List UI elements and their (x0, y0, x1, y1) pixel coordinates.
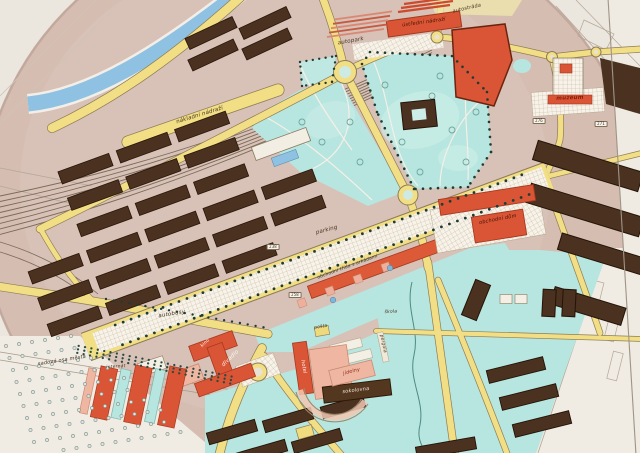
tree-dot (110, 428, 113, 431)
tree-dot (229, 382, 231, 384)
tree-dot (320, 270, 323, 273)
tree-dot (41, 376, 44, 379)
tree-dot (76, 352, 78, 354)
tree-dot (154, 309, 157, 312)
tree-dot (44, 388, 47, 391)
tree-dot (265, 268, 268, 271)
tree-dot (417, 212, 420, 215)
tree-dot (421, 53, 424, 56)
tree-dot (512, 199, 515, 202)
tree-dot (472, 214, 475, 217)
tree-dot (192, 371, 194, 373)
tree-dot (387, 134, 390, 137)
tree-dot (24, 366, 27, 369)
tree-dot (129, 340, 132, 343)
tree-dot (318, 83, 320, 85)
tree-dot (32, 440, 35, 443)
tree-dot (145, 335, 148, 338)
tree-dot (142, 398, 145, 401)
tree-dot (140, 436, 143, 439)
tree-dot (17, 342, 20, 345)
tree-dot (482, 87, 485, 90)
tree-dot (103, 350, 105, 352)
tree-dot (247, 323, 249, 325)
tree-dot (400, 240, 403, 243)
tree-dot (15, 380, 18, 383)
tree-dot (50, 362, 53, 365)
tree-dot (121, 357, 123, 359)
tree-dot (490, 151, 493, 154)
tree-dot (223, 381, 225, 383)
tree-dot (51, 412, 54, 415)
tree-dot (108, 358, 110, 360)
tree-dot (114, 440, 117, 443)
tree-dot (393, 221, 396, 224)
tree-dot (84, 346, 86, 348)
tree-dot (477, 170, 480, 173)
tree-dot (191, 313, 193, 315)
tree-dot (129, 355, 131, 357)
tree-dot (95, 356, 97, 358)
tree-dot (457, 197, 460, 200)
tree-dot (128, 358, 130, 360)
tree-dot (90, 347, 92, 349)
tree-dot (211, 375, 213, 377)
tree-dot (83, 350, 85, 352)
tree-dot (97, 430, 100, 433)
tree-dot (376, 51, 379, 54)
tree-dot (192, 368, 194, 370)
tree-dot (121, 361, 123, 363)
tree-dot (329, 244, 332, 247)
tree-dot (184, 312, 186, 314)
tree-dot (331, 81, 333, 83)
tree-dot (176, 311, 178, 313)
tree-dot (87, 394, 90, 397)
tree-dot (172, 371, 174, 373)
tree-dot (360, 255, 363, 258)
tree-dot (312, 273, 315, 276)
tree-dot (345, 238, 348, 241)
tree-dot (384, 51, 387, 54)
tree-dot (209, 311, 212, 314)
tree-dot (122, 354, 124, 356)
tree-dot (217, 308, 220, 311)
tree-dot (198, 372, 200, 374)
tree-dot (58, 436, 61, 439)
tree-dot (481, 188, 484, 191)
tree-dot (160, 361, 162, 363)
tree-dot (153, 332, 156, 335)
tree-dot (305, 253, 308, 256)
tree-dot (162, 420, 165, 423)
tree-dot (321, 247, 324, 250)
tree-dot (217, 376, 219, 378)
tree-dot (224, 374, 226, 376)
tree-dot (109, 351, 111, 353)
tree-dot (144, 305, 146, 307)
tree-dot (130, 318, 133, 321)
tree-dot (465, 194, 468, 197)
tree-dot (486, 91, 489, 94)
tree-dot (77, 408, 80, 411)
tree-dot (134, 360, 136, 362)
tree-dot (211, 371, 213, 373)
tree-dot (179, 365, 181, 367)
tree-dot (440, 226, 443, 229)
tree-dot (197, 376, 199, 378)
tree-dot (273, 287, 276, 290)
tree-dot (129, 400, 132, 403)
tree-dot (68, 422, 71, 425)
tree-dot (489, 143, 492, 146)
tree-dot (331, 56, 333, 58)
tree-dot (29, 428, 32, 431)
tree-dot (436, 54, 439, 57)
tree-dot (337, 241, 340, 244)
tree-dot (178, 300, 181, 303)
tree-dot (122, 376, 125, 379)
tree-dot (416, 234, 419, 237)
tree-dot (225, 305, 228, 308)
tree-dot (391, 52, 394, 55)
tree-dot (25, 416, 28, 419)
tree-dot (210, 379, 212, 381)
tree-dot (43, 338, 46, 341)
tree-dot (114, 359, 116, 361)
tree-dot (161, 329, 164, 332)
tree-dot (138, 315, 141, 318)
tree-dot (466, 71, 469, 74)
tree-dot (216, 380, 218, 382)
tree-dot (249, 296, 252, 299)
tree-dot (289, 259, 292, 262)
tree-dot (444, 54, 447, 57)
tree-dot (96, 380, 99, 383)
tree-dot (67, 372, 70, 375)
tree-dot (367, 82, 370, 85)
tree-dot (352, 258, 355, 261)
tree-dot (8, 356, 11, 359)
tree-dot (413, 188, 416, 191)
tree-dot (488, 128, 491, 131)
tree-dot (148, 359, 150, 361)
tree-dot (425, 209, 428, 212)
tree-dot (127, 362, 129, 364)
tree-dot (193, 317, 196, 320)
tree-dot (177, 323, 180, 326)
tree-dot (90, 351, 92, 353)
tree-dot (403, 167, 406, 170)
tree-dot (451, 55, 454, 58)
tree-dot (473, 176, 476, 179)
tree-dot (61, 398, 64, 401)
tree-dot (299, 61, 301, 63)
tree-dot (45, 438, 48, 441)
tree-dot (371, 96, 374, 99)
tree-dot (28, 378, 31, 381)
tree-dot (469, 182, 472, 185)
tree-dot (81, 420, 84, 423)
tree-dot (93, 368, 96, 371)
tree-dot (21, 354, 24, 357)
tree-dot (94, 418, 97, 421)
tree-dot (239, 322, 241, 324)
tree-dot (140, 365, 142, 367)
tree-dot (186, 297, 189, 300)
tree-dot (233, 280, 236, 283)
tree-dot (361, 232, 364, 235)
tree-dot (149, 422, 152, 425)
tree-dot (166, 432, 169, 435)
tree-dot (160, 308, 162, 310)
tree-dot (100, 392, 103, 395)
tree-dot (482, 163, 485, 166)
tree-dot (89, 356, 92, 359)
tree-dot (452, 186, 455, 189)
tree-dot (74, 396, 77, 399)
tree-dot (305, 276, 308, 279)
tree-dot (76, 358, 79, 361)
tree-dot (136, 304, 138, 306)
tree-dot (141, 361, 143, 363)
tree-dot (75, 446, 78, 449)
tree-dot (365, 57, 368, 60)
tree-dot (31, 390, 34, 393)
tree-dot (185, 370, 187, 372)
tree-dot (106, 366, 109, 369)
tree-dot (166, 366, 168, 368)
tree-dot (199, 315, 201, 317)
tree-dot (390, 140, 393, 143)
tree-dot (429, 187, 432, 190)
tree-dot (400, 161, 403, 164)
tree-dot (146, 312, 149, 315)
tree-dot (437, 187, 440, 190)
tree-dot (369, 51, 372, 54)
tree-dot (399, 52, 402, 55)
tree-dot (11, 368, 14, 371)
tree-dot (205, 370, 207, 372)
tree-dot (449, 200, 452, 203)
tree-dot (146, 366, 148, 368)
tree-dot (70, 384, 73, 387)
tree-dot (374, 104, 377, 107)
tree-dot (71, 434, 74, 437)
tree-dot (231, 320, 233, 322)
tree-dot (179, 430, 182, 433)
tree-dot (114, 324, 117, 327)
tree-dot (504, 202, 507, 205)
tree-dot (459, 186, 462, 189)
tree-dot (369, 89, 372, 92)
tree-dot (496, 205, 499, 208)
tree-dot (414, 53, 417, 56)
tree-dot (64, 410, 67, 413)
tree-dot (312, 59, 314, 61)
tree-dot (225, 282, 228, 285)
tree-dot (380, 120, 383, 123)
tree-dot (63, 360, 66, 363)
tree-dot (160, 365, 162, 367)
tree-dot (115, 356, 117, 358)
tree-dot (467, 186, 470, 189)
tree-dot (122, 321, 125, 324)
tree-dot (408, 237, 411, 240)
tree-dot (153, 364, 155, 366)
tree-dot (199, 369, 201, 371)
tree-dot (262, 326, 264, 328)
tree-dot (96, 352, 98, 354)
tree-dot (126, 388, 129, 391)
tree-dot (313, 250, 316, 253)
tree-dot (154, 360, 156, 362)
tree-dot (116, 402, 119, 405)
tree-dot (105, 298, 107, 300)
tree-dot (83, 382, 86, 385)
tree-dot (385, 224, 388, 227)
tree-dot (377, 226, 380, 229)
tree-dot (170, 303, 173, 306)
tree-dot (30, 340, 33, 343)
tree-dot (47, 350, 50, 353)
masterplan-map: nákladní nádražíautoparkústřední nádraží… (0, 0, 640, 453)
tree-dot (54, 374, 57, 377)
tree-dot (376, 249, 379, 252)
tree-dot (369, 229, 372, 232)
tree-dot (334, 61, 336, 63)
tree-dot (254, 325, 256, 327)
tree-dot (377, 113, 380, 116)
tree-dot (464, 217, 467, 220)
tree-dot (109, 355, 111, 357)
tree-dot (456, 220, 459, 223)
tree-dot (147, 362, 149, 364)
tree-dot (406, 174, 409, 177)
tree-dot (55, 424, 58, 427)
tree-dot (486, 157, 489, 160)
tree-dot (249, 274, 252, 277)
tree-dot (410, 181, 413, 184)
tree-dot (301, 85, 303, 87)
tree-dot (392, 243, 395, 246)
tree-dot (113, 390, 116, 393)
tree-dot (324, 57, 326, 59)
tree-dot (218, 373, 220, 375)
tree-dot (480, 211, 483, 214)
tree-dot (528, 193, 531, 196)
tree-dot (97, 349, 99, 351)
tree-dot (487, 106, 490, 109)
tree-dot (107, 416, 110, 419)
tree-dot (80, 370, 83, 373)
tree-dot (173, 364, 175, 366)
tree-dot (133, 412, 136, 415)
tree-dot (57, 386, 60, 389)
tree-dot (344, 261, 347, 264)
tree-dot (101, 442, 104, 445)
tree-dot (461, 66, 464, 69)
tree-dot (185, 320, 188, 323)
tree-dot (368, 252, 371, 255)
tree-dot (257, 293, 260, 296)
tree-dot (312, 83, 314, 85)
tree-dot (127, 438, 130, 441)
tree-dot (376, 111, 379, 114)
tree-dot (233, 302, 236, 305)
tree-dot (305, 60, 307, 62)
tree-dot (4, 344, 7, 347)
tree-dot (38, 414, 41, 417)
tree-dot (204, 377, 206, 379)
tree-dot (135, 356, 137, 358)
tree-dot (444, 187, 447, 190)
tree-dot (477, 82, 480, 85)
tree-dot (241, 277, 244, 280)
map-drawing (0, 0, 640, 453)
tree-dot (218, 285, 221, 288)
tree-dot (159, 368, 161, 370)
tree-dot (120, 414, 123, 417)
tree-dot (159, 408, 162, 411)
tree-dot (505, 179, 508, 182)
tree-dot (167, 363, 169, 365)
tree-dot (520, 196, 523, 199)
tree-dot (22, 404, 25, 407)
tree-dot (305, 84, 307, 86)
tree-dot (128, 302, 130, 304)
tree-dot (241, 299, 244, 302)
tree-dot (88, 444, 91, 447)
tree-dot (223, 378, 225, 380)
tree-dot (146, 410, 149, 413)
tree-dot (194, 294, 197, 297)
tree-dot (401, 218, 404, 221)
tree-dot (207, 316, 209, 318)
tree-dot (281, 284, 284, 287)
tree-dot (289, 282, 292, 285)
tree-dot (69, 334, 72, 337)
tree-dot (102, 357, 104, 359)
courtyard-building (401, 99, 438, 129)
tree-dot (78, 345, 80, 347)
tree-dot (168, 309, 170, 311)
tree-dot (178, 372, 180, 374)
tree-dot (153, 367, 155, 369)
tree-dot (332, 74, 334, 76)
tree-dot (273, 265, 276, 268)
tree-dot (191, 375, 193, 377)
tree-dot (223, 319, 225, 321)
tree-dot (497, 182, 500, 185)
tree-dot (384, 127, 387, 130)
tree-dot (406, 53, 409, 56)
tree-dot (424, 231, 427, 234)
tree-dot (60, 348, 63, 351)
tree-dot (37, 364, 40, 367)
tree-dot (215, 318, 217, 320)
tree-dot (121, 343, 124, 346)
tree-dot (137, 337, 140, 340)
tree-dot (230, 375, 232, 377)
tree-dot (34, 352, 37, 355)
tree-dot (300, 78, 302, 80)
tree-dot (35, 402, 38, 405)
tree-dot (335, 55, 337, 57)
tree-dot (179, 369, 181, 371)
tree-dot (393, 147, 396, 150)
tree-dot (318, 58, 320, 60)
